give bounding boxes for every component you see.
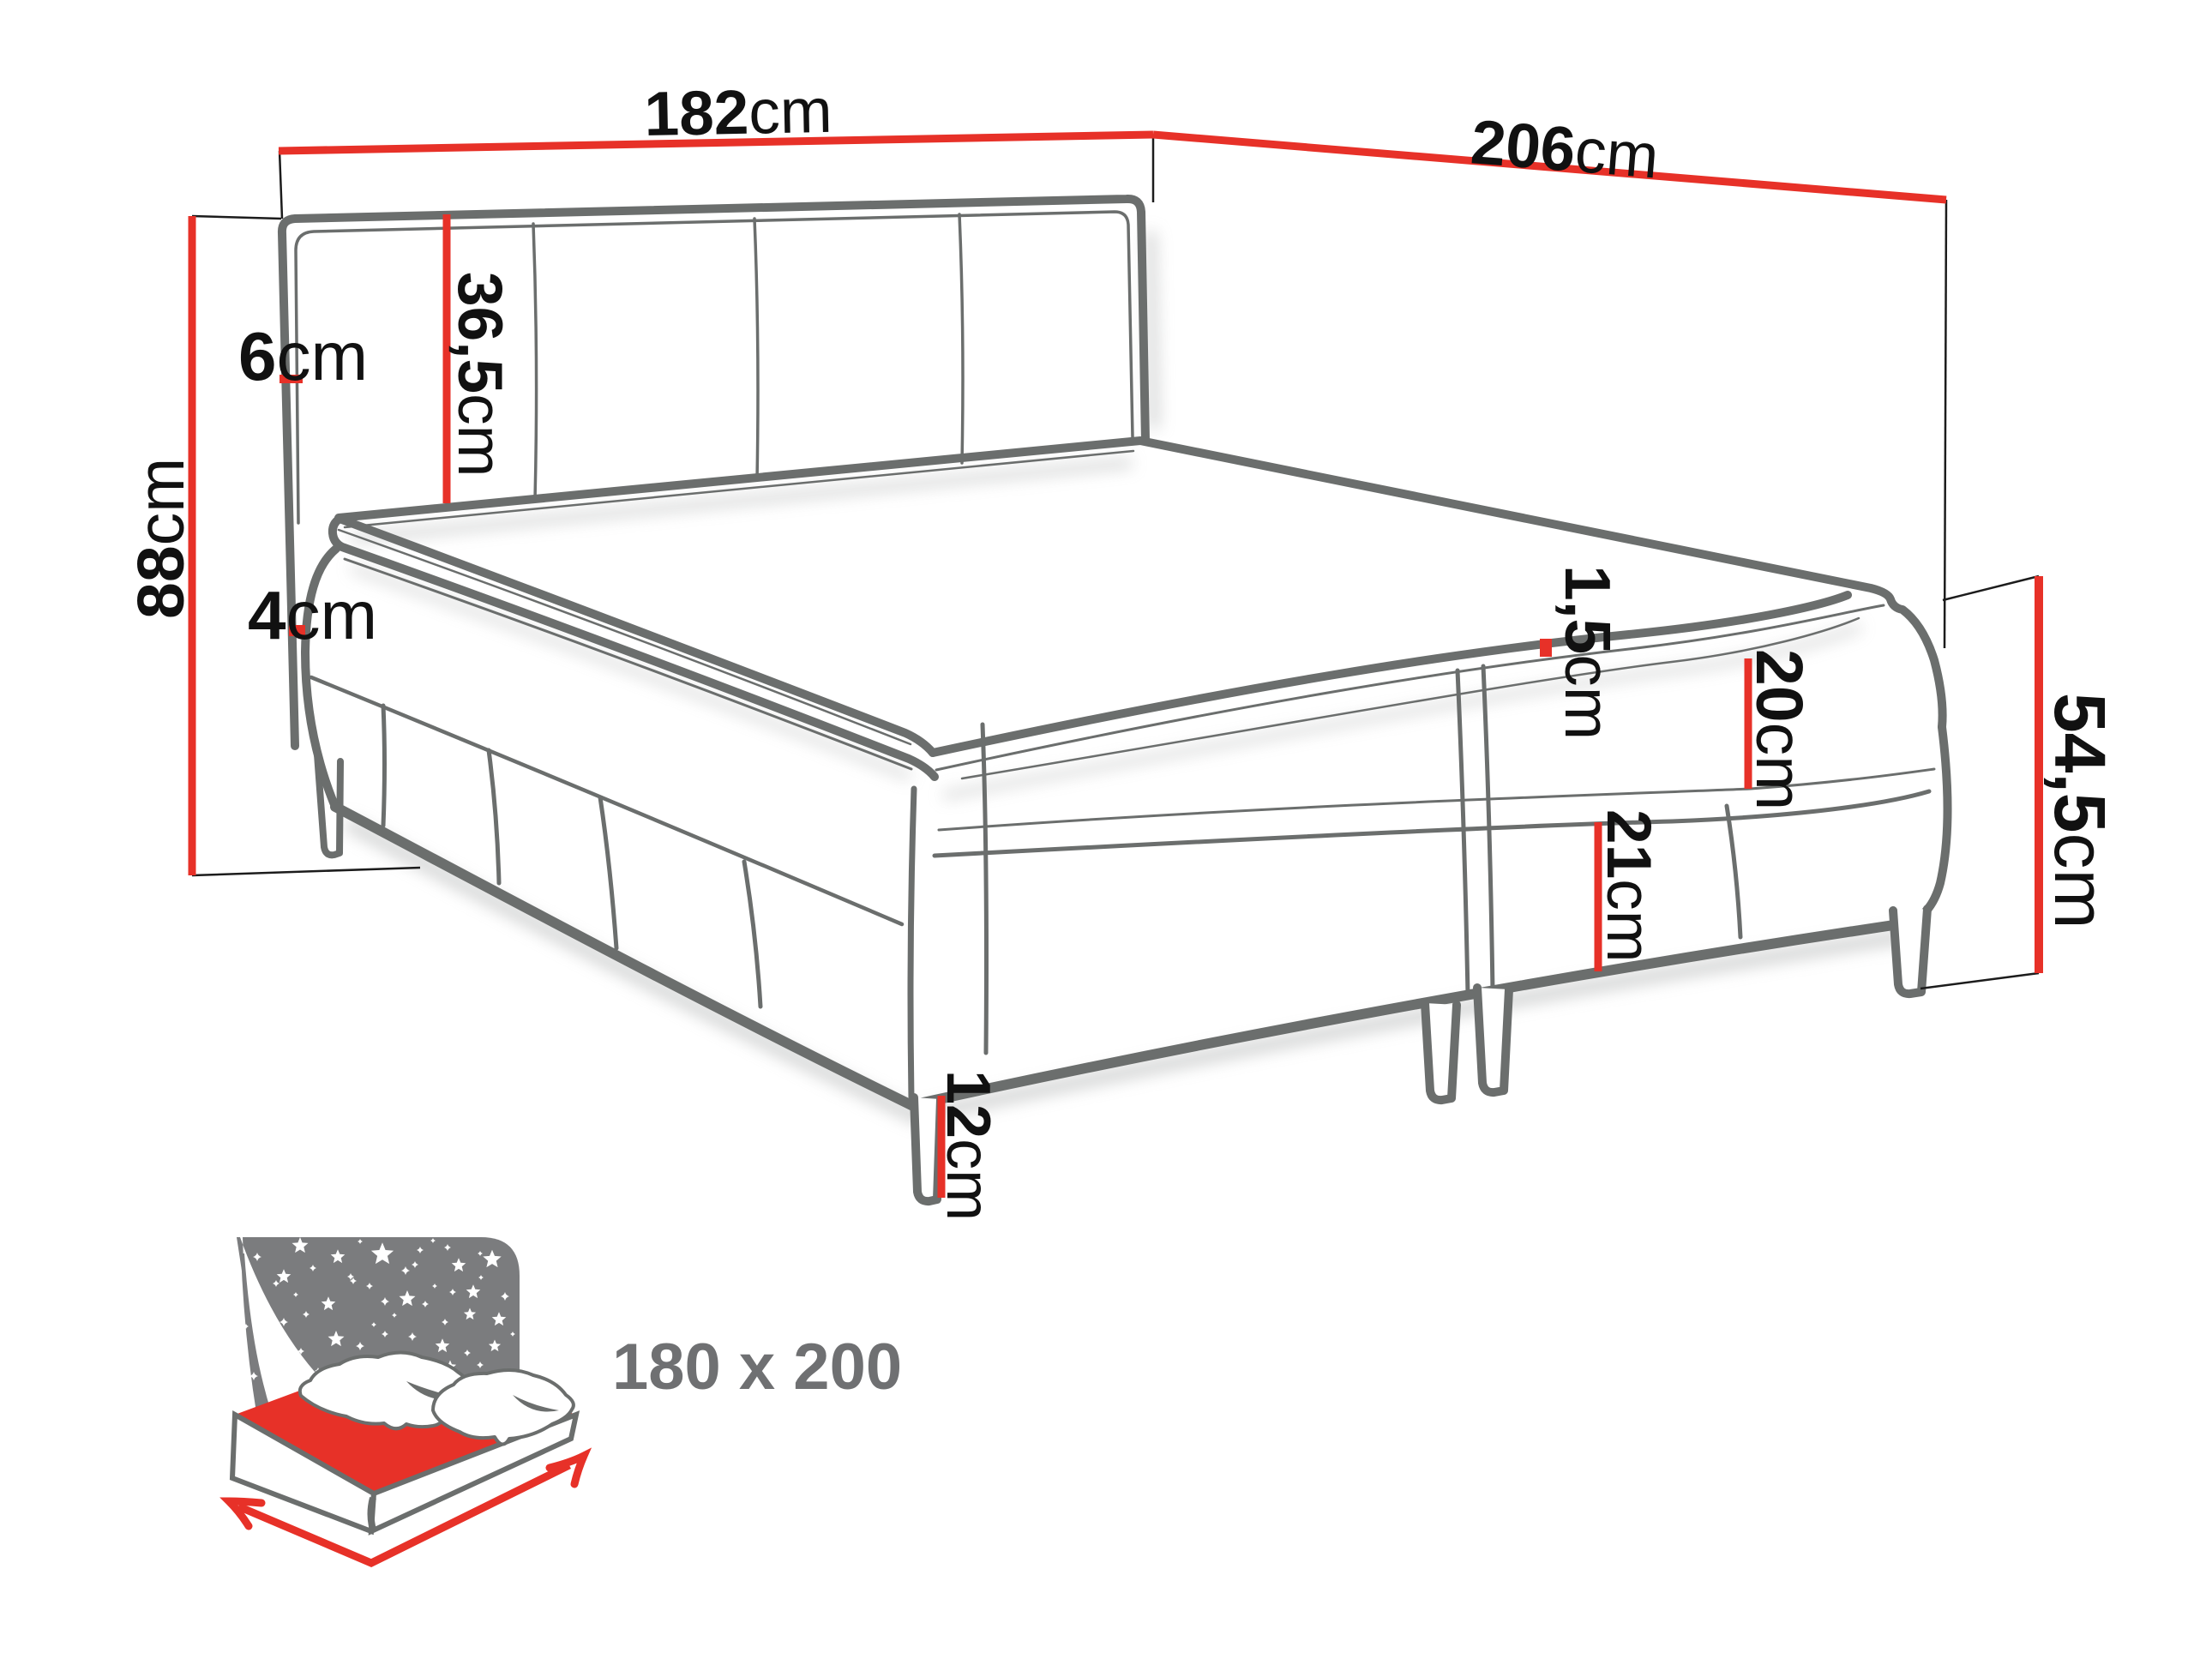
svg-text:206cm: 206cm — [1469, 107, 1662, 191]
svg-text:4cm: 4cm — [248, 577, 377, 653]
svg-text:180 x 200: 180 x 200 — [612, 1331, 902, 1404]
svg-text:6cm: 6cm — [238, 318, 368, 394]
svg-text:182cm: 182cm — [644, 76, 833, 149]
svg-text:54,5cm: 54,5cm — [2040, 693, 2120, 929]
svg-text:12cm: 12cm — [934, 1070, 1002, 1221]
svg-text:88cm: 88cm — [124, 458, 198, 619]
svg-text:1,5cm: 1,5cm — [1552, 565, 1624, 740]
svg-text:36,5cm: 36,5cm — [445, 272, 514, 477]
svg-text:20cm: 20cm — [1742, 649, 1816, 810]
svg-text:21cm: 21cm — [1594, 809, 1663, 963]
